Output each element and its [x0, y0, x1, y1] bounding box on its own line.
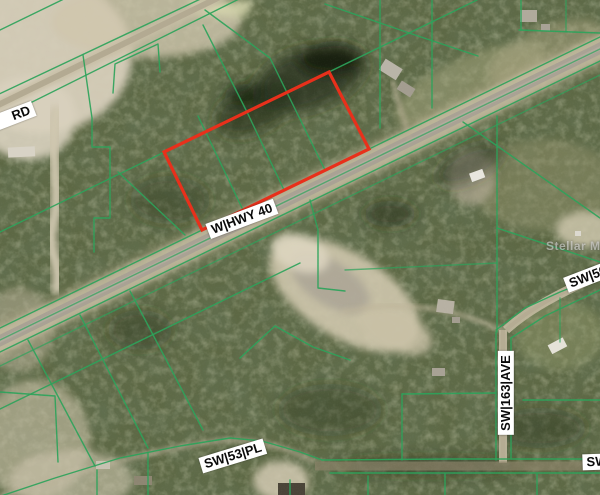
map-canvas[interactable]: RD W|HWY 40 SW|50 SW|163|AVE SW|53|PL SW…: [0, 0, 600, 495]
road-label-sw-partial: SW: [582, 453, 600, 470]
road-label-sw-163-ave: SW|163|AVE: [498, 351, 514, 435]
stellar-mls-watermark: Stellar MLS: [546, 239, 600, 253]
